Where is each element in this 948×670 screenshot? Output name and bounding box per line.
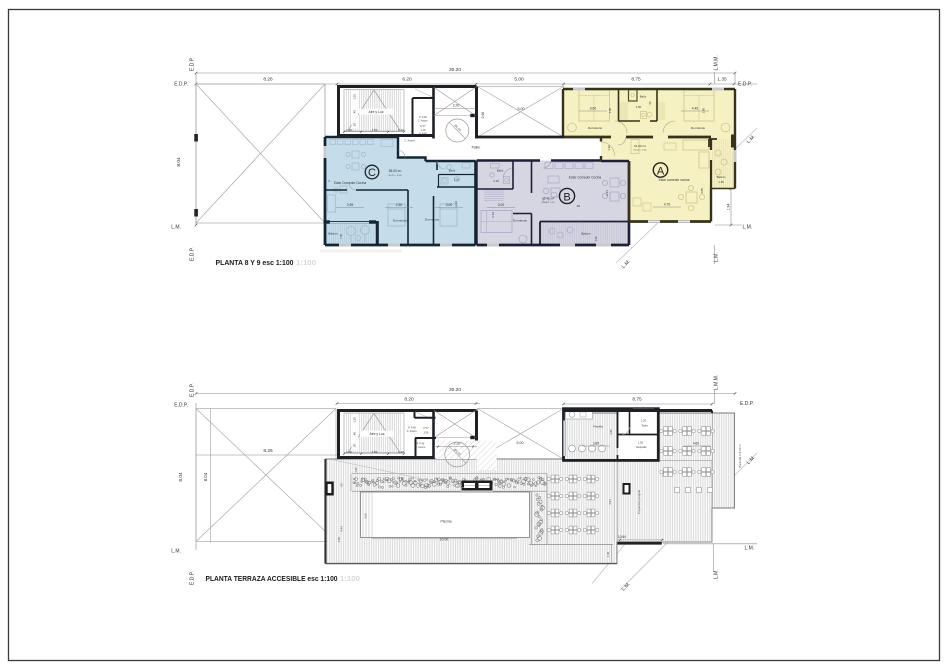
svg-text:E.D.P.: E.D.P. [740, 401, 754, 407]
svg-text:Baño: Baño [497, 169, 504, 173]
svg-text:1.35: 1.35 [340, 234, 343, 239]
svg-text:(58.00 + 7.40): (58.00 + 7.40) [542, 202, 555, 204]
svg-text:3.58: 3.58 [424, 432, 429, 435]
svg-text:Proyeccion pergola: Proyeccion pergola [637, 490, 641, 514]
svg-text:8.04: 8.04 [178, 472, 184, 482]
svg-text:Dormitorio: Dormitorio [588, 126, 603, 130]
svg-text:1.35: 1.35 [717, 77, 727, 83]
svg-text:PLANTA TERRAZA ACCESIBLE esc 1: PLANTA TERRAZA ACCESIBLE esc 1:100 [206, 574, 338, 583]
svg-text:Deposito: Deposito [636, 445, 647, 449]
svg-text:Aire y Luz: Aire y Luz [369, 432, 384, 436]
svg-text:1:100: 1:100 [296, 258, 316, 267]
svg-text:1.20: 1.20 [353, 417, 357, 423]
svg-text:(56.00 + 5.60): (56.00 + 5.60) [634, 150, 647, 152]
svg-text:Parrilla: Parrilla [593, 425, 603, 429]
svg-text:Estar Comedor Cocina: Estar Comedor Cocina [569, 176, 601, 180]
svg-text:.40: .40 [353, 432, 357, 436]
svg-text:L.M.: L.M. [743, 225, 753, 231]
svg-text:A°C°: A°C° [423, 426, 429, 430]
svg-text:8.04: 8.04 [176, 157, 182, 167]
svg-text:L.M.: L.M. [171, 549, 181, 555]
svg-text:3.00: 3.00 [446, 203, 453, 207]
svg-text:Piscina: Piscina [441, 520, 452, 524]
svg-text:4.70: 4.70 [664, 203, 671, 207]
svg-text:4.44: 4.44 [340, 526, 344, 532]
svg-text:E.D.P.: E.D.P. [174, 403, 188, 409]
svg-text:8.20: 8.20 [404, 397, 414, 403]
svg-text:3.00: 3.00 [498, 203, 505, 207]
svg-text:L.M.M.: L.M.M. [714, 375, 720, 390]
svg-text:8.26: 8.26 [263, 448, 273, 454]
svg-text:C: C [368, 167, 376, 179]
svg-text:.20: .20 [353, 444, 357, 448]
svg-text:1.35: 1.35 [718, 180, 724, 184]
svg-text:1.30: 1.30 [607, 145, 611, 151]
svg-text:.60: .60 [576, 204, 581, 208]
svg-text:P. F-60: P. F-60 [419, 133, 427, 136]
svg-text:3.19: 3.19 [454, 201, 458, 207]
svg-text:PLANTA 8 Y 9 esc 1:100: PLANTA 8 Y 9 esc 1:100 [216, 258, 294, 267]
svg-text:E.D.P.: E.D.P. [190, 571, 196, 585]
svg-text:Dormitorio: Dormitorio [425, 218, 440, 222]
svg-text:E.D.P.: E.D.P. [190, 383, 196, 397]
svg-text:Toilet: Toilet [641, 424, 648, 428]
svg-text:2.95: 2.95 [347, 203, 354, 207]
svg-text:Dormitorio: Dormitorio [393, 219, 408, 223]
svg-text:1.50: 1.50 [638, 441, 644, 445]
svg-text:6.20: 6.20 [402, 77, 412, 83]
svg-text:L.M.M.: L.M.M. [714, 55, 720, 70]
svg-text:2.66: 2.66 [481, 112, 485, 119]
svg-text:Balcon: Balcon [717, 175, 726, 179]
svg-text:1.50: 1.50 [636, 105, 642, 109]
svg-text:A: A [657, 166, 665, 178]
svg-text:5.00: 5.00 [514, 77, 524, 83]
svg-text:1.20: 1.20 [354, 467, 358, 473]
svg-text:E.D.P.: E.D.P. [738, 82, 752, 88]
svg-text:B: B [563, 192, 570, 204]
svg-text:2.10: 2.10 [493, 179, 499, 183]
svg-text:4.60: 4.60 [693, 442, 699, 446]
svg-text:61.60 m²: 61.60 m² [634, 144, 646, 148]
svg-text:1.36: 1.36 [606, 551, 610, 557]
svg-text:8.75: 8.75 [632, 397, 642, 403]
svg-text:Palier: Palier [472, 146, 482, 150]
svg-text:8.75: 8.75 [631, 77, 641, 83]
svg-text:C. Autom.: C. Autom. [407, 430, 418, 433]
svg-text:2.50: 2.50 [396, 203, 403, 207]
svg-text:.40: .40 [353, 110, 357, 114]
svg-text:E.D.P.: E.D.P. [190, 57, 196, 71]
svg-text:10.00: 10.00 [440, 537, 449, 541]
svg-text:Dormitorio: Dormitorio [513, 219, 528, 223]
svg-text:Balcon: Balcon [328, 232, 338, 236]
svg-text:C. Autom.: C. Autom. [418, 120, 429, 123]
svg-text:4.45: 4.45 [692, 107, 699, 111]
svg-text:2.85: 2.85 [609, 429, 613, 435]
svg-text:C. Autom.: C. Autom. [405, 140, 416, 143]
svg-text:1:100: 1:100 [340, 574, 360, 583]
svg-text:4.94: 4.94 [608, 499, 612, 505]
svg-text:1.20: 1.20 [398, 450, 404, 454]
svg-text:30.20: 30.20 [449, 387, 461, 393]
svg-text:8.04: 8.04 [203, 472, 208, 481]
svg-text:L.M.: L.M. [714, 569, 720, 579]
svg-text:4.85: 4.85 [700, 188, 704, 194]
svg-text:.20: .20 [353, 123, 357, 127]
svg-text:E.D.P.: E.D.P. [190, 247, 196, 261]
svg-text:2.44: 2.44 [605, 190, 609, 196]
svg-text:Estar comedor cocina: Estar comedor cocina [659, 178, 690, 182]
svg-text:(50.20 + 5.80): (50.20 + 5.80) [388, 175, 402, 177]
svg-text:1.94: 1.94 [727, 204, 731, 211]
svg-text:3.60: 3.60 [590, 107, 597, 111]
svg-text:Estar Comedor Cocina: Estar Comedor Cocina [334, 181, 366, 185]
svg-text:2.80: 2.80 [337, 536, 341, 542]
svg-text:L.M.: L.M. [171, 225, 181, 231]
svg-text:E.D.P.: E.D.P. [174, 82, 188, 88]
svg-text:Baño: Baño [449, 169, 456, 173]
svg-text:30.20: 30.20 [449, 67, 461, 73]
svg-text:Balcon: Balcon [581, 232, 591, 236]
svg-text:1.20: 1.20 [353, 94, 357, 100]
svg-text:L.M.: L.M. [745, 546, 755, 552]
svg-text:2.80: 2.80 [702, 107, 706, 113]
svg-text:C. Autom.: C. Autom. [415, 446, 426, 449]
svg-text:Baranda h=1.00 m: Baranda h=1.00 m [738, 444, 742, 468]
svg-text:2.20: 2.20 [453, 104, 460, 108]
svg-text:8.26: 8.26 [263, 77, 273, 83]
svg-text:Baño: Baño [640, 95, 647, 99]
svg-text:3.00: 3.00 [364, 513, 368, 519]
svg-text:5.00: 5.00 [518, 107, 525, 111]
svg-text:10.60: 10.60 [618, 535, 626, 539]
svg-text:3.19: 3.19 [491, 212, 495, 218]
svg-text:1.82: 1.82 [372, 128, 378, 132]
svg-text:1.82: 1.82 [372, 450, 378, 454]
svg-text:1.20: 1.20 [641, 419, 647, 423]
svg-text:Aire y Luz: Aire y Luz [368, 110, 383, 114]
svg-text:2.10: 2.10 [454, 178, 460, 182]
svg-text:Dormitorio: Dormitorio [691, 126, 706, 130]
svg-text:1.20: 1.20 [398, 128, 404, 132]
svg-text:65.40 m²: 65.40 m² [542, 197, 554, 201]
svg-text:3.85: 3.85 [593, 442, 599, 446]
svg-text:2.80: 2.80 [608, 107, 612, 113]
svg-text:A°C°: A°C° [420, 124, 426, 128]
svg-text:1.36: 1.36 [594, 236, 598, 242]
svg-text:1.20: 1.20 [346, 450, 352, 454]
svg-text:5.00: 5.00 [517, 441, 524, 445]
svg-text:.60: .60 [340, 483, 344, 487]
svg-text:1.20: 1.20 [346, 128, 352, 132]
svg-text:56.00 m²: 56.00 m² [389, 169, 402, 173]
